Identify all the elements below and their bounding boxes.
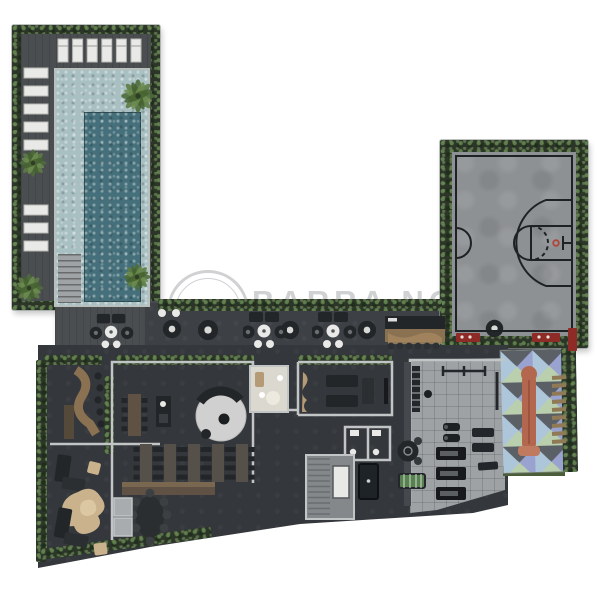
basketball-court-surface <box>452 152 576 336</box>
playground-right-hedge <box>561 348 578 472</box>
bar-side-hedge <box>104 376 114 454</box>
pool-deck-steps <box>58 254 81 303</box>
swimming-pool-deep-lane <box>84 112 141 302</box>
amenities-floor-plan: BN BARRA NORTE IMÓVEIS <box>0 0 600 600</box>
gym-floor <box>410 358 505 513</box>
terrace-top-hedge <box>158 299 442 311</box>
interior-left-hedge <box>36 360 47 562</box>
party-room-top-hedge <box>116 355 254 365</box>
lounge-top-hedge <box>44 355 102 365</box>
tv-room-top-hedge <box>298 355 392 365</box>
kids-playground-floor <box>500 349 567 473</box>
